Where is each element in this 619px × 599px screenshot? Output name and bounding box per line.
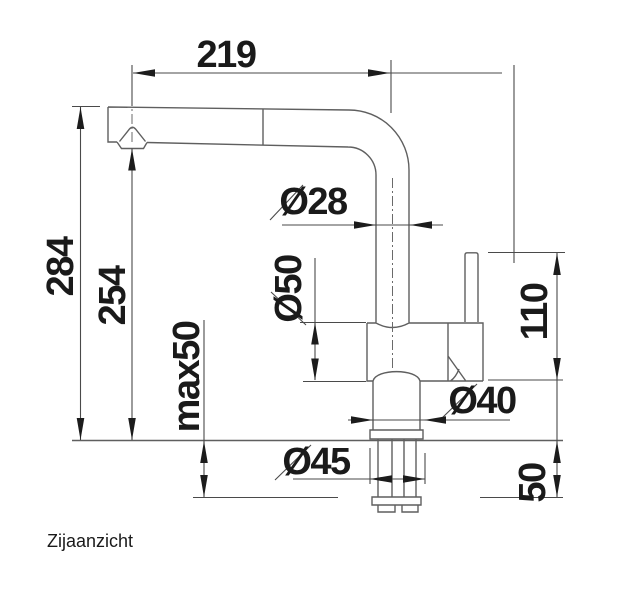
spout-outline — [108, 107, 409, 323]
locknut — [372, 497, 421, 512]
dim-label-lever-height: 110 — [516, 284, 554, 341]
view-caption: Zijaanzicht — [47, 531, 133, 552]
dim-label-below-counter: 50 — [514, 463, 552, 502]
base-column — [373, 381, 420, 430]
dim-label-spout-diameter: Ø28 — [279, 183, 346, 221]
body-outline — [367, 323, 483, 381]
threaded-shank — [378, 439, 416, 497]
dimension-arrows — [77, 69, 561, 497]
technical-drawing-side-view: 219 284 254 max50 Ø28 Ø50 110 Ø40 Ø45 50… — [0, 0, 619, 599]
dimension-lines — [72, 60, 565, 498]
dim-label-outlet-height: 254 — [94, 267, 132, 326]
dim-label-projection: 219 — [197, 36, 256, 74]
dim-label-total-height: 284 — [42, 238, 80, 297]
dim-219 — [132, 60, 514, 263]
dim-label-body-diameter: Ø50 — [270, 255, 308, 322]
dim-label-base-diameter: Ø40 — [448, 382, 515, 420]
base-flange — [370, 430, 423, 439]
dim-label-shank-diameter: Ø45 — [282, 443, 349, 481]
lever-handle — [465, 253, 478, 322]
dim-label-counter-max: max50 — [168, 322, 206, 433]
